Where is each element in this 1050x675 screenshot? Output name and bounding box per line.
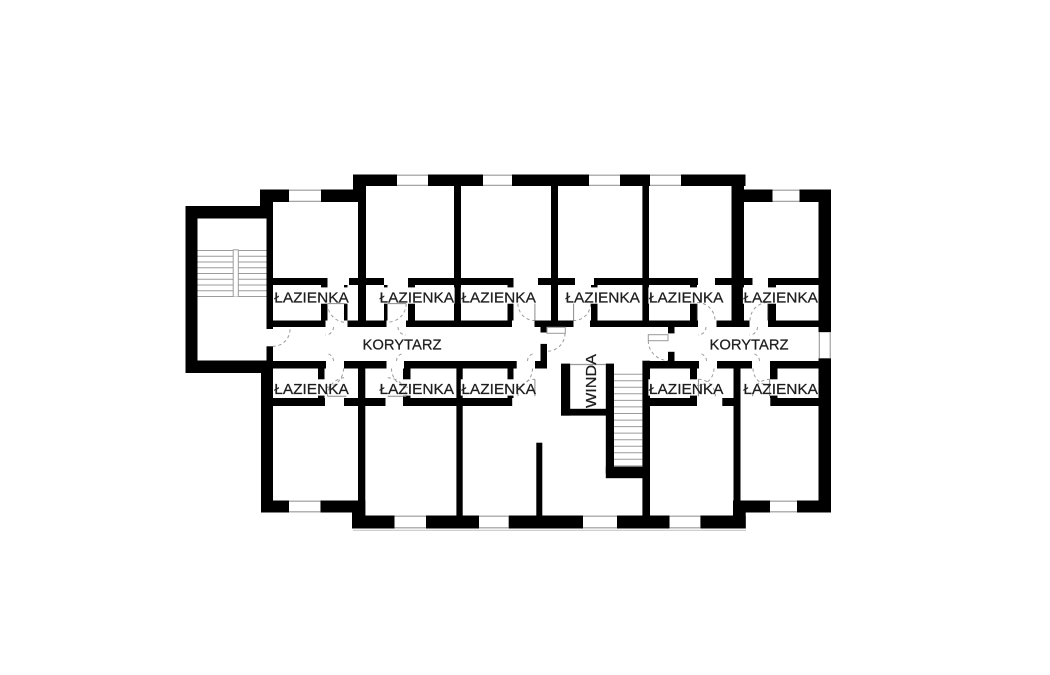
svg-text:ŁAZIENKA: ŁAZIENKA	[565, 290, 640, 306]
svg-text:ŁAZIENKA: ŁAZIENKA	[380, 382, 455, 398]
svg-text:ŁAZIENKA: ŁAZIENKA	[274, 382, 349, 398]
svg-text:ŁAZIENKA: ŁAZIENKA	[461, 290, 536, 306]
svg-text:ŁAZIENKA: ŁAZIENKA	[649, 382, 724, 398]
svg-text:ŁAZIENKA: ŁAZIENKA	[274, 290, 349, 306]
svg-text:ŁAZIENKA: ŁAZIENKA	[743, 290, 818, 306]
svg-text:ŁAZIENKA: ŁAZIENKA	[743, 382, 818, 398]
svg-text:KORYTARZ: KORYTARZ	[710, 338, 789, 354]
svg-text:WINDA: WINDA	[584, 354, 600, 408]
svg-text:ŁAZIENKA: ŁAZIENKA	[461, 382, 536, 398]
svg-text:KORYTARZ: KORYTARZ	[363, 338, 442, 354]
svg-text:ŁAZIENKA: ŁAZIENKA	[380, 290, 455, 306]
svg-text:ŁAZIENKA: ŁAZIENKA	[649, 290, 724, 306]
